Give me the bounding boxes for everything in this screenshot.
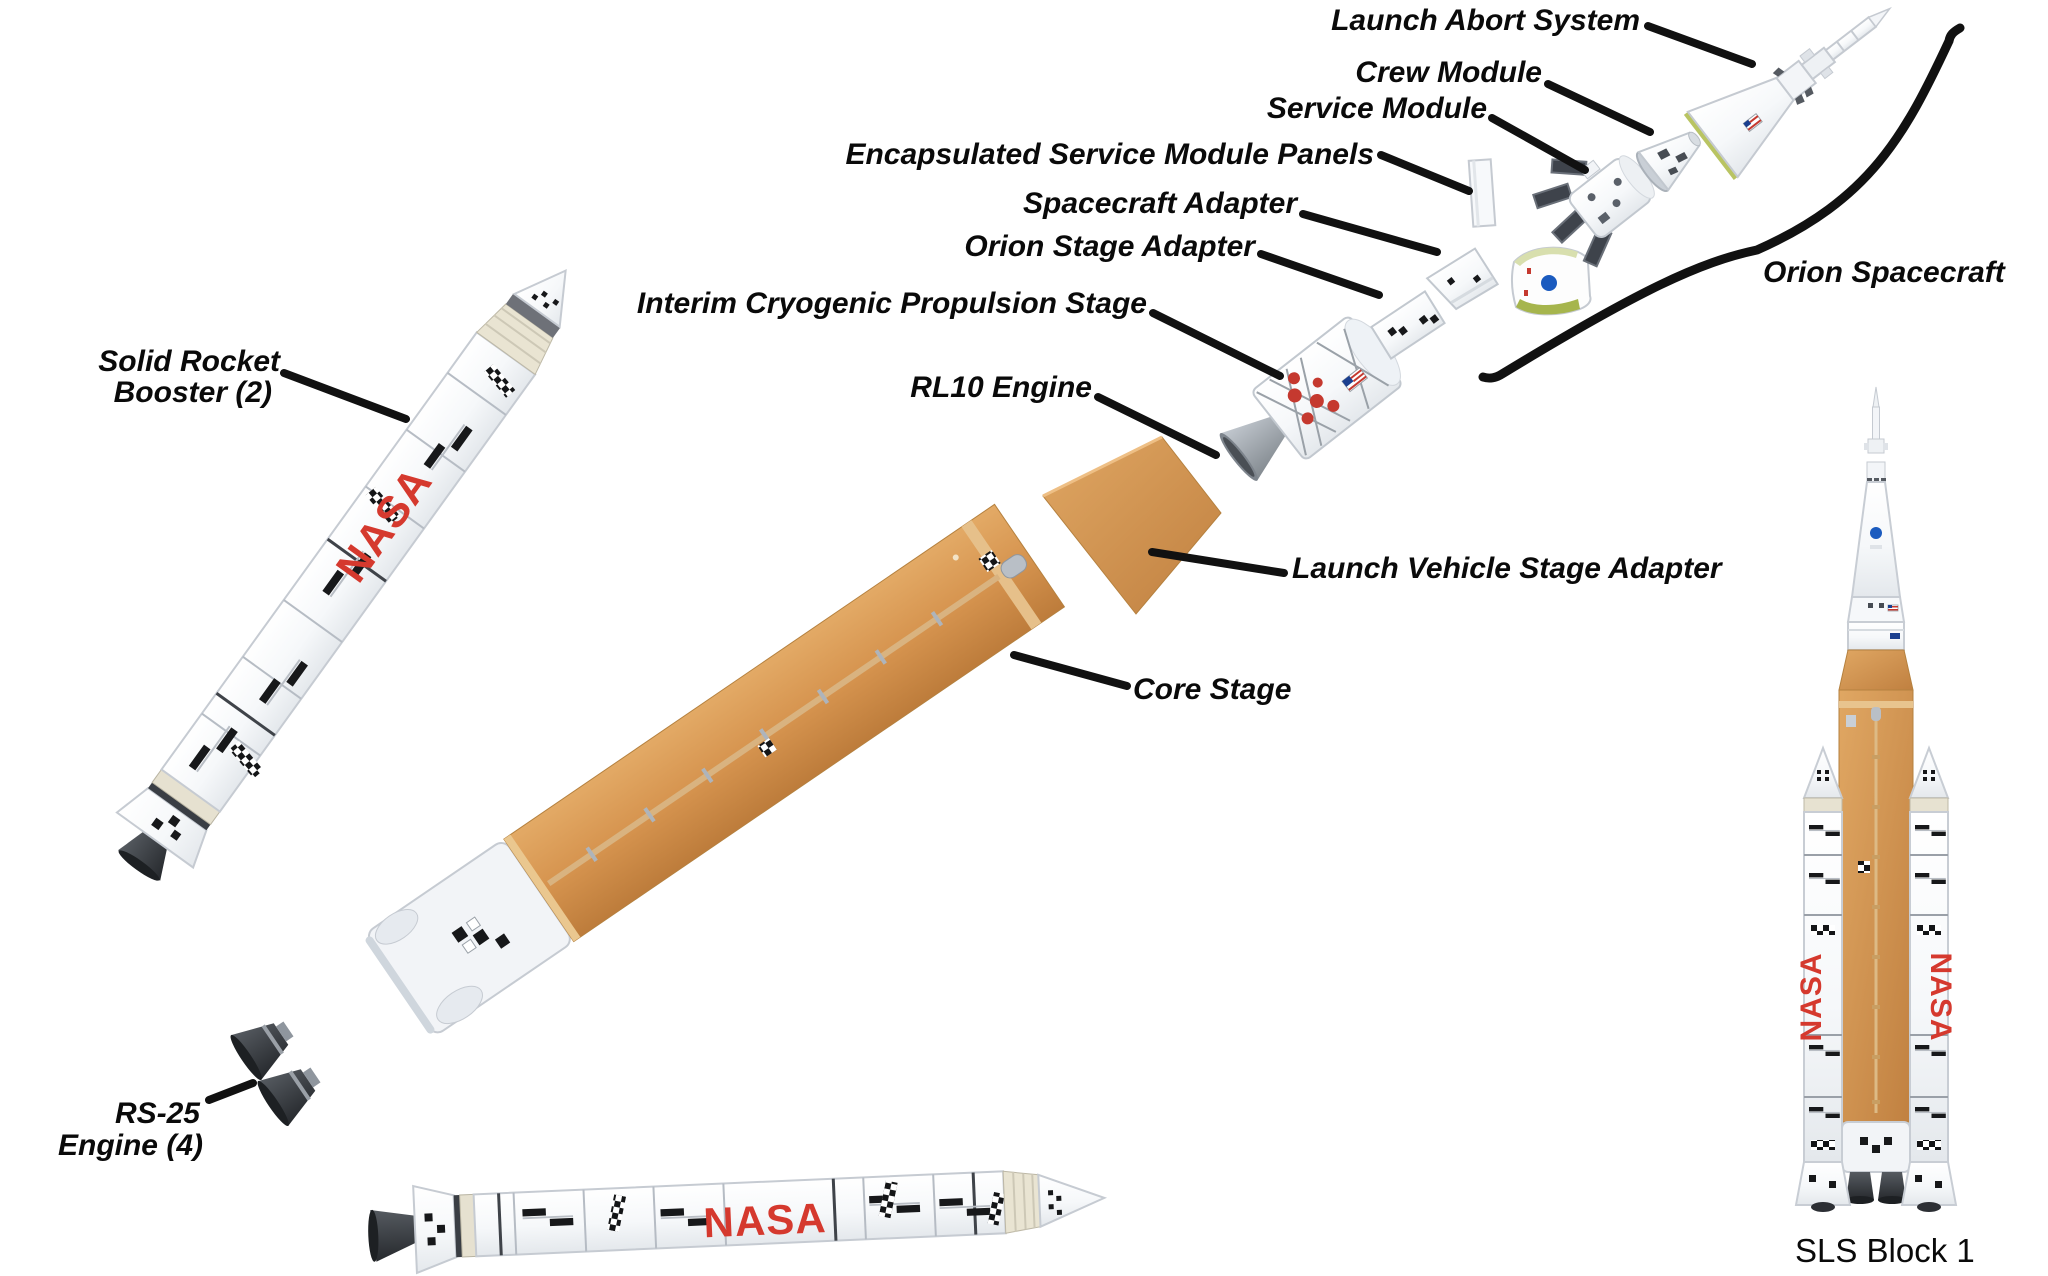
leader-orion-stage-adapter	[1261, 254, 1379, 295]
leader-srb	[284, 373, 406, 419]
srb2-aft-skirt	[413, 1184, 457, 1273]
block1-srb-left: NASA	[1795, 748, 1850, 1212]
lvsa-graphic	[1043, 437, 1221, 614]
label-esm-panels: Encapsulated Service Module Panels	[845, 138, 1374, 171]
leader-crew-module	[1548, 84, 1650, 132]
orion-fairing	[1852, 482, 1900, 597]
leader-spacecraft-adapter	[1303, 214, 1437, 252]
label-launch-abort-system: Launch Abort System	[1331, 4, 1640, 37]
rs25-engines-graphic	[227, 1007, 331, 1129]
solid-rocket-booster-bottom-graphic: NASA	[366, 1156, 1106, 1275]
las-tower	[1826, 17, 1876, 59]
label-crew-module: Crew Module	[1355, 56, 1542, 89]
block1-srb-right: NASA	[1902, 748, 1957, 1212]
label-lvsa: Launch Vehicle Stage Adapter	[1292, 552, 1724, 585]
block1-lvsa	[1839, 650, 1913, 690]
label-orion-spacecraft: Orion Spacecraft	[1763, 256, 2007, 289]
launch-abort-system-graphic	[1684, 0, 1915, 180]
sls-block1-rocket: NASA NASA	[1795, 387, 1957, 1212]
block1-tunnel	[1875, 715, 1878, 1113]
labels: Launch Abort System Crew Module Service …	[58, 4, 2007, 1269]
label-sls-block-1: SLS Block 1	[1795, 1232, 1975, 1269]
sls-exploded-diagram: NASA	[0, 0, 2048, 1276]
label-srb-line1: Solid Rocket	[98, 345, 282, 378]
leader-rs25	[209, 1083, 253, 1100]
leader-esm-panels	[1381, 155, 1469, 191]
label-spacecraft-adapter: Spacecraft Adapter	[1023, 187, 1299, 220]
label-rs25-line1: RS-25	[115, 1097, 201, 1130]
core-stage-graphic	[361, 504, 1065, 1041]
label-rl10-engine: RL10 Engine	[910, 371, 1092, 404]
esm-flat-panel	[1469, 159, 1496, 226]
block1-srb-right-worm: NASA	[1924, 952, 1957, 1041]
core-systems-tunnel	[547, 574, 1001, 886]
label-icps: Interim Cryogenic Propulsion Stage	[637, 287, 1147, 320]
solid-rocket-booster-graphic: NASA	[96, 243, 603, 896]
label-rs25-line2: Engine (4)	[58, 1129, 203, 1162]
leader-icps	[1153, 313, 1280, 376]
nasa-meatball-icon	[1870, 527, 1882, 539]
block1-srb-left-worm: NASA	[1795, 952, 1828, 1041]
leader-core-stage	[1014, 655, 1127, 686]
nasa-meatball-icon	[1541, 275, 1557, 291]
label-orion-stage-adapter: Orion Stage Adapter	[964, 230, 1257, 263]
leader-service-module	[1492, 118, 1585, 170]
diagram-canvas: NASA	[0, 0, 2048, 1276]
srb2-nasa-worm: NASA	[703, 1194, 828, 1246]
esm-curved-panel	[1512, 248, 1591, 315]
flag-icon	[1888, 605, 1898, 611]
label-core-stage: Core Stage	[1133, 673, 1291, 706]
leader-launch-abort-system	[1648, 26, 1752, 64]
block1-rs25-nozzles	[1846, 1172, 1906, 1204]
srb2-nose-cone	[1038, 1172, 1105, 1227]
label-service-module: Service Module	[1267, 92, 1487, 125]
label-srb-line2: Booster (2)	[114, 376, 272, 409]
